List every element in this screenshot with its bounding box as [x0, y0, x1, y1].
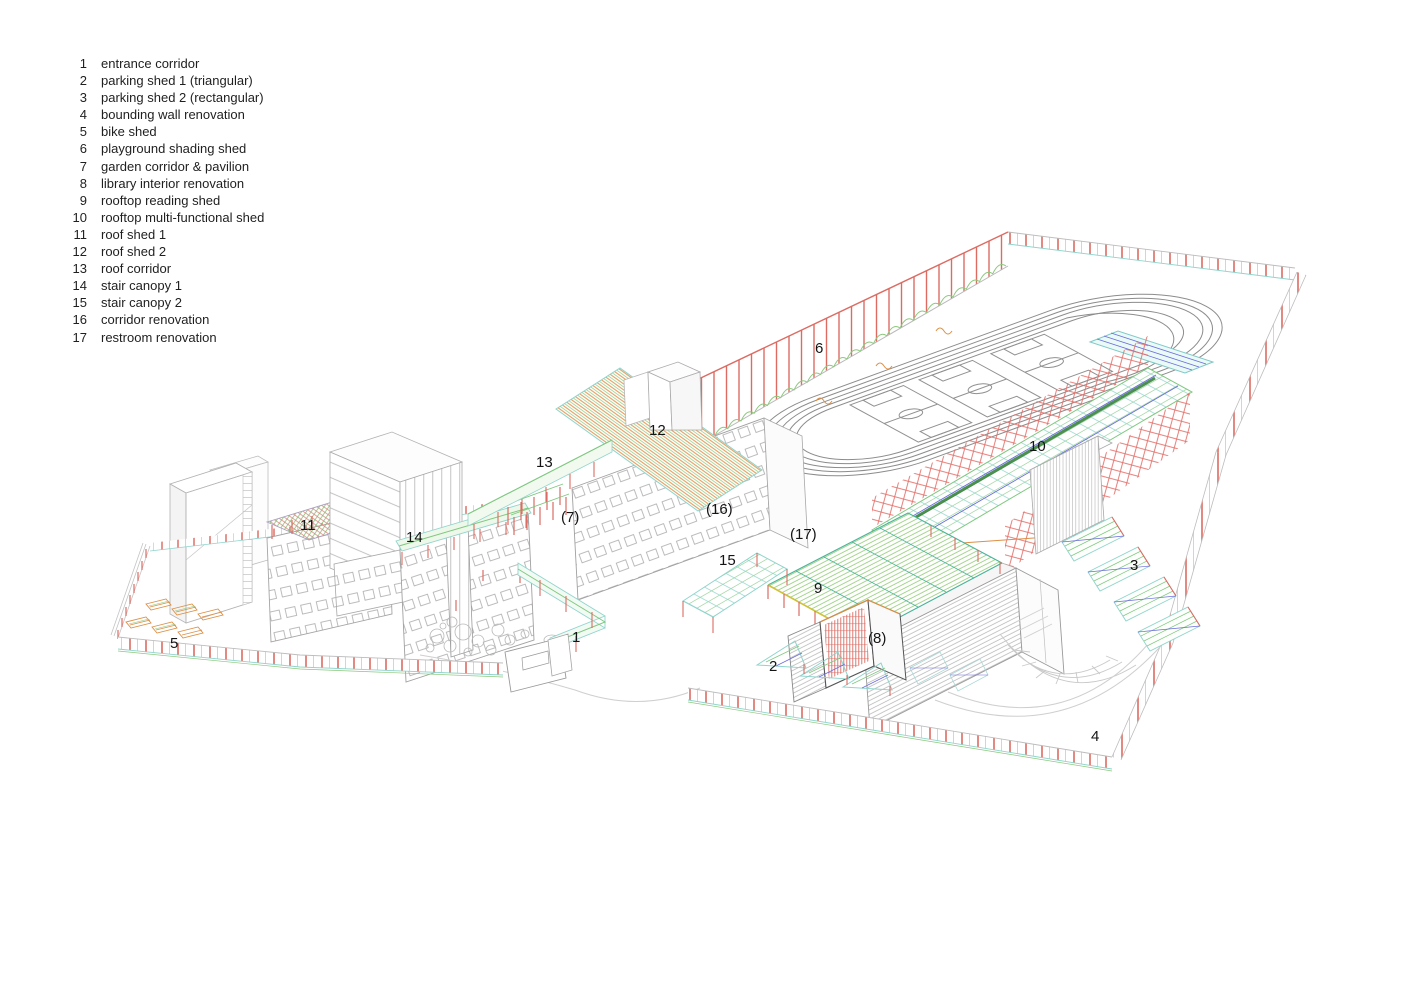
drawing-label-2: 2	[769, 658, 777, 675]
drawing-label-7: (7)	[561, 509, 579, 526]
drawing-label-15: 15	[719, 552, 736, 569]
page: 1entrance corridor 2parking shed 1 (tria…	[0, 0, 1414, 1000]
drawing-label-9: 9	[814, 580, 822, 597]
drawing-label-1: 1	[572, 629, 580, 646]
drawing-label-4: 4	[1091, 728, 1099, 745]
drawing-label-17: (17)	[790, 526, 817, 543]
drawing-label-14: 14	[406, 529, 423, 546]
drawing-label-12: 12	[649, 422, 666, 439]
drawing-label-8: (8)	[868, 630, 886, 647]
drawing-label-11: 11	[300, 517, 316, 534]
drawing-label-6: 6	[815, 340, 823, 357]
drawing-label-5: 5	[170, 635, 178, 652]
drawing-label-13: 13	[536, 454, 553, 471]
structure-6-playground-shading-shed	[686, 232, 1008, 452]
drawing-label-16: (16)	[706, 501, 733, 518]
drawing-label-3: 3	[1130, 557, 1138, 574]
axonometric-drawing: 6 12 13 10 (16) (7) (17) 11 14 15 3 9 1 …	[0, 0, 1414, 1000]
boundary-fence-top	[1008, 232, 1295, 280]
rooftop-tower-small	[624, 362, 702, 430]
drawing-label-10: 10	[1029, 438, 1046, 455]
